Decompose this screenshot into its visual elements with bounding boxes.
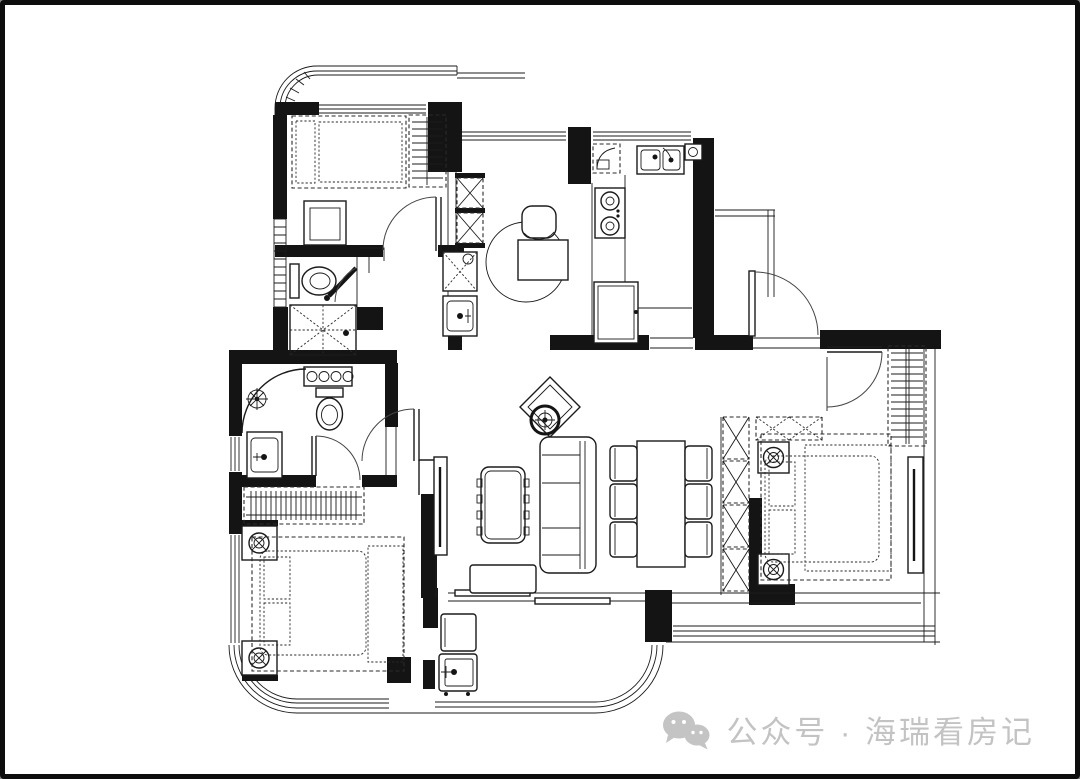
nightstand-lamp-icon	[242, 526, 277, 560]
bedroom-right	[756, 346, 926, 585]
floor-plan-svg	[5, 5, 1080, 779]
shower-head-icon	[246, 388, 268, 410]
study-hall-nook	[443, 178, 568, 336]
washbasin-icon	[247, 432, 282, 478]
desk-icon	[518, 240, 568, 280]
hanging-wardrobe-icon	[244, 487, 364, 524]
balcony-ledge-top-left	[275, 66, 525, 137]
nightstand-lamp-icon	[758, 442, 789, 473]
fridge-icon	[594, 282, 638, 343]
toilet-icon	[316, 388, 343, 430]
dining-chairs-right	[685, 446, 712, 557]
watermark: 公众号 · 海瑞看房记	[660, 707, 1035, 752]
wall-tv-icon	[434, 457, 447, 555]
shower-icon	[290, 305, 356, 355]
wechat-icon	[660, 709, 712, 751]
kitchen	[593, 144, 702, 348]
watermark-text: 公众号 · 海瑞看房记	[726, 707, 1035, 752]
bed-icon	[292, 116, 406, 188]
sofa-icon	[540, 437, 596, 573]
gas-stove-icon	[595, 188, 625, 238]
nightstand-lamp-icon	[242, 641, 277, 675]
x-dresser-icon	[756, 417, 822, 440]
tv-bench-icon	[470, 565, 536, 593]
wall-tv-icon	[908, 457, 923, 573]
hanging-wardrobe-icon	[888, 346, 926, 446]
shower-screen-icon	[242, 369, 306, 433]
balcony-bottom	[439, 614, 477, 696]
cabinet-icon	[441, 614, 476, 651]
ceiling-lamp-icon	[531, 406, 559, 434]
desk-icon	[304, 201, 346, 245]
washer-cabinet-icon	[443, 252, 477, 291]
sink-icon	[637, 146, 684, 174]
coffee-table-icon	[477, 467, 529, 543]
bedroom3-door	[827, 347, 882, 407]
bathroom2-door	[312, 436, 360, 480]
ledge-right-of-kitchen	[715, 210, 775, 297]
dining-chairs-left	[610, 446, 637, 557]
left-vent-window	[274, 219, 286, 307]
x-storage-column-icon	[723, 417, 749, 591]
towel-rack-icon	[304, 367, 353, 386]
hood-appliance-icon	[593, 144, 620, 173]
bedroom-bottom-left	[242, 487, 404, 675]
bedroom1-door	[383, 197, 441, 251]
drain-box-icon	[685, 144, 702, 160]
toilet-icon	[290, 264, 336, 298]
floorplan-image: 公众号 · 海瑞看房记	[0, 0, 1080, 779]
partitions	[357, 171, 940, 645]
dining-area	[610, 417, 749, 591]
bedroom-top-left	[292, 115, 446, 245]
chair-icon	[522, 206, 556, 239]
front-door	[749, 271, 820, 348]
washing-machine-icon	[439, 654, 477, 696]
common-bathroom	[242, 367, 353, 478]
living-room	[434, 377, 596, 593]
vanity-basin-icon	[443, 296, 477, 336]
dining-table-icon	[637, 441, 685, 567]
